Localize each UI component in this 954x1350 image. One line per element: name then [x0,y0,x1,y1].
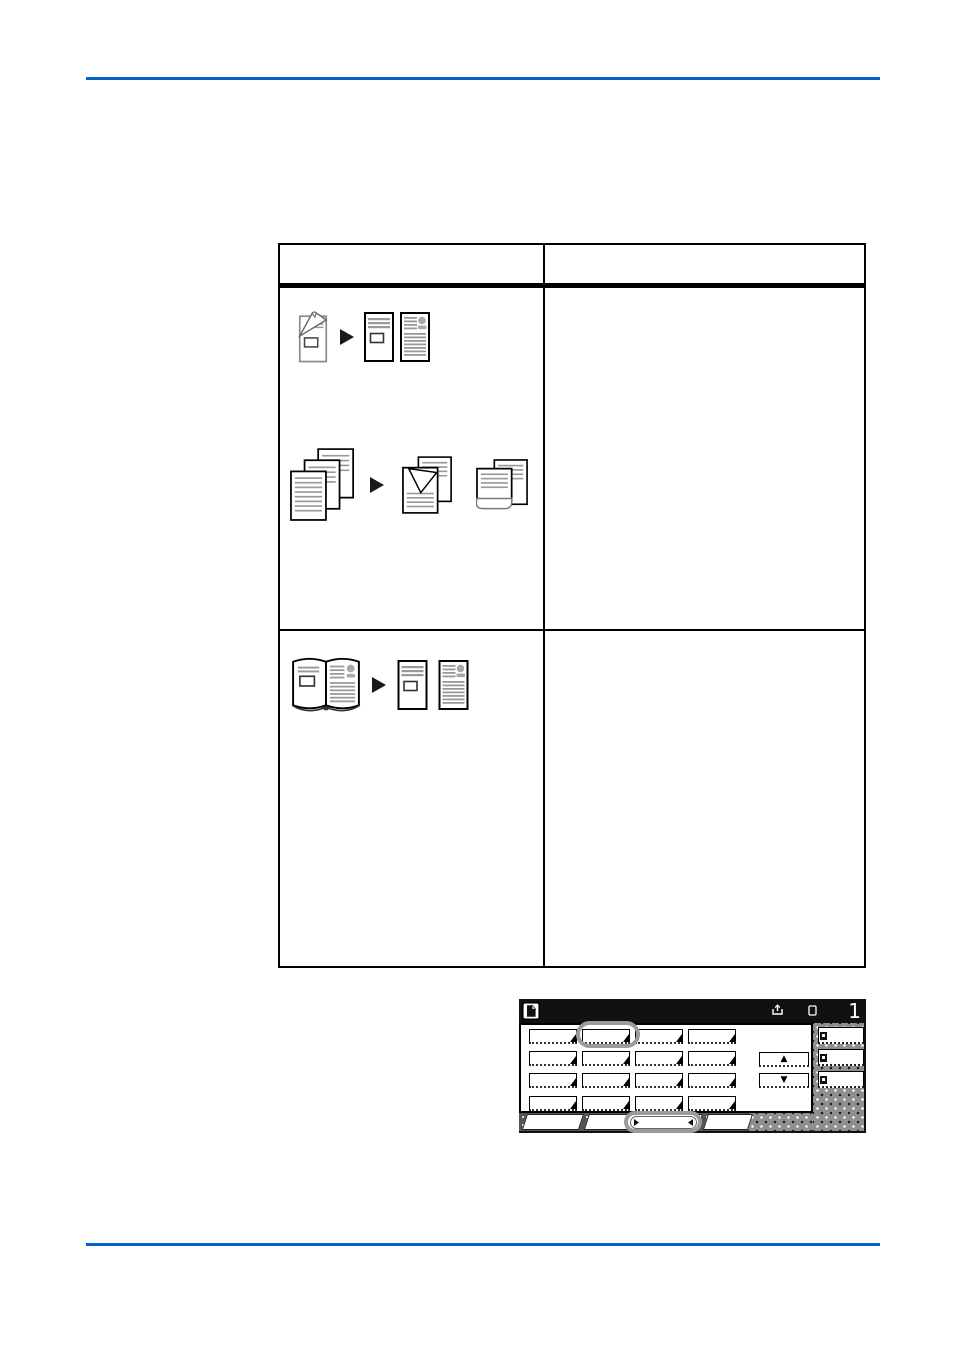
function-button-7[interactable] [635,1051,683,1066]
table-header-row [280,245,864,288]
copy-page-portrait-icon [437,660,470,710]
table-row-book [280,631,864,966]
callout-ring-tab-button [624,1111,702,1133]
panel-right-strip [813,1023,864,1131]
book-example [290,655,470,715]
table-row2-description-cell [545,631,864,966]
panel-tab-1[interactable] [522,1114,584,1130]
panel-function-area: ▲ ▼ [519,1023,813,1113]
document-icon [522,1002,540,1020]
status-count: 1 [848,999,861,1023]
copy-function-table [278,243,866,968]
arrow-right-icon [372,677,386,693]
function-button-1[interactable] [529,1029,577,1044]
table-row2-illustration-cell [280,631,545,966]
function-button-4[interactable] [688,1029,736,1044]
function-button-6[interactable] [582,1051,630,1066]
function-button-10[interactable] [582,1073,630,1088]
function-button-11[interactable] [635,1073,683,1088]
original-stack-icon [290,448,358,522]
function-button-14[interactable] [582,1096,630,1111]
touch-panel-screenshot: 1 ▲ ▼ [519,999,866,1133]
copy-page-text-icon [396,660,429,710]
function-button-15[interactable] [635,1096,683,1111]
arrow-right-icon [370,477,384,493]
page-layout-icon [820,1032,827,1040]
page-layout-icon [820,1076,827,1084]
side-function-button-3[interactable] [818,1071,864,1088]
footer-rule [86,1243,880,1246]
function-button-16[interactable] [688,1096,736,1111]
twosided-example-a [296,310,430,364]
scroll-down-icon: ▼ [781,1075,788,1085]
scroll-down-button[interactable]: ▼ [759,1073,809,1088]
function-button-12[interactable] [688,1073,736,1088]
two-sided-original-icon [296,310,330,364]
copies-curled-icon [476,459,530,511]
copy-page-portrait-icon [400,312,430,362]
table-header-description-cell [545,245,864,283]
header-rule [86,77,880,80]
function-button-13[interactable] [529,1096,577,1111]
table-row1-description-cell [545,288,864,629]
copies-folded-corner-icon [402,456,454,514]
output-tray-icon [771,1004,784,1017]
twosided-example-b [290,448,530,522]
paper-icon [808,1005,817,1016]
side-function-button-2[interactable] [818,1049,864,1066]
side-function-button-1[interactable] [818,1027,864,1044]
copy-page-text-icon [364,312,394,362]
table-row-twosided [280,288,864,631]
callout-ring-function-button [576,1021,640,1048]
scroll-up-icon: ▲ [781,1054,788,1064]
page-layout-icon [820,1054,827,1062]
panel-title-bar: 1 [519,999,866,1023]
function-button-9[interactable] [529,1073,577,1088]
table-header-item-cell [280,245,545,283]
function-button-5[interactable] [529,1051,577,1066]
panel-tab-bar-corner [748,1113,813,1131]
table-row1-illustration-cell [280,288,545,629]
manual-page: { "rules": { "color": "#0562C1" }, "tabl… [0,0,954,1350]
arrow-right-icon [340,329,354,345]
function-button-3[interactable] [635,1029,683,1044]
panel-tab-3[interactable] [703,1114,753,1130]
function-button-8[interactable] [688,1051,736,1066]
scroll-up-button[interactable]: ▲ [759,1052,809,1067]
open-book-original-icon [290,655,362,715]
